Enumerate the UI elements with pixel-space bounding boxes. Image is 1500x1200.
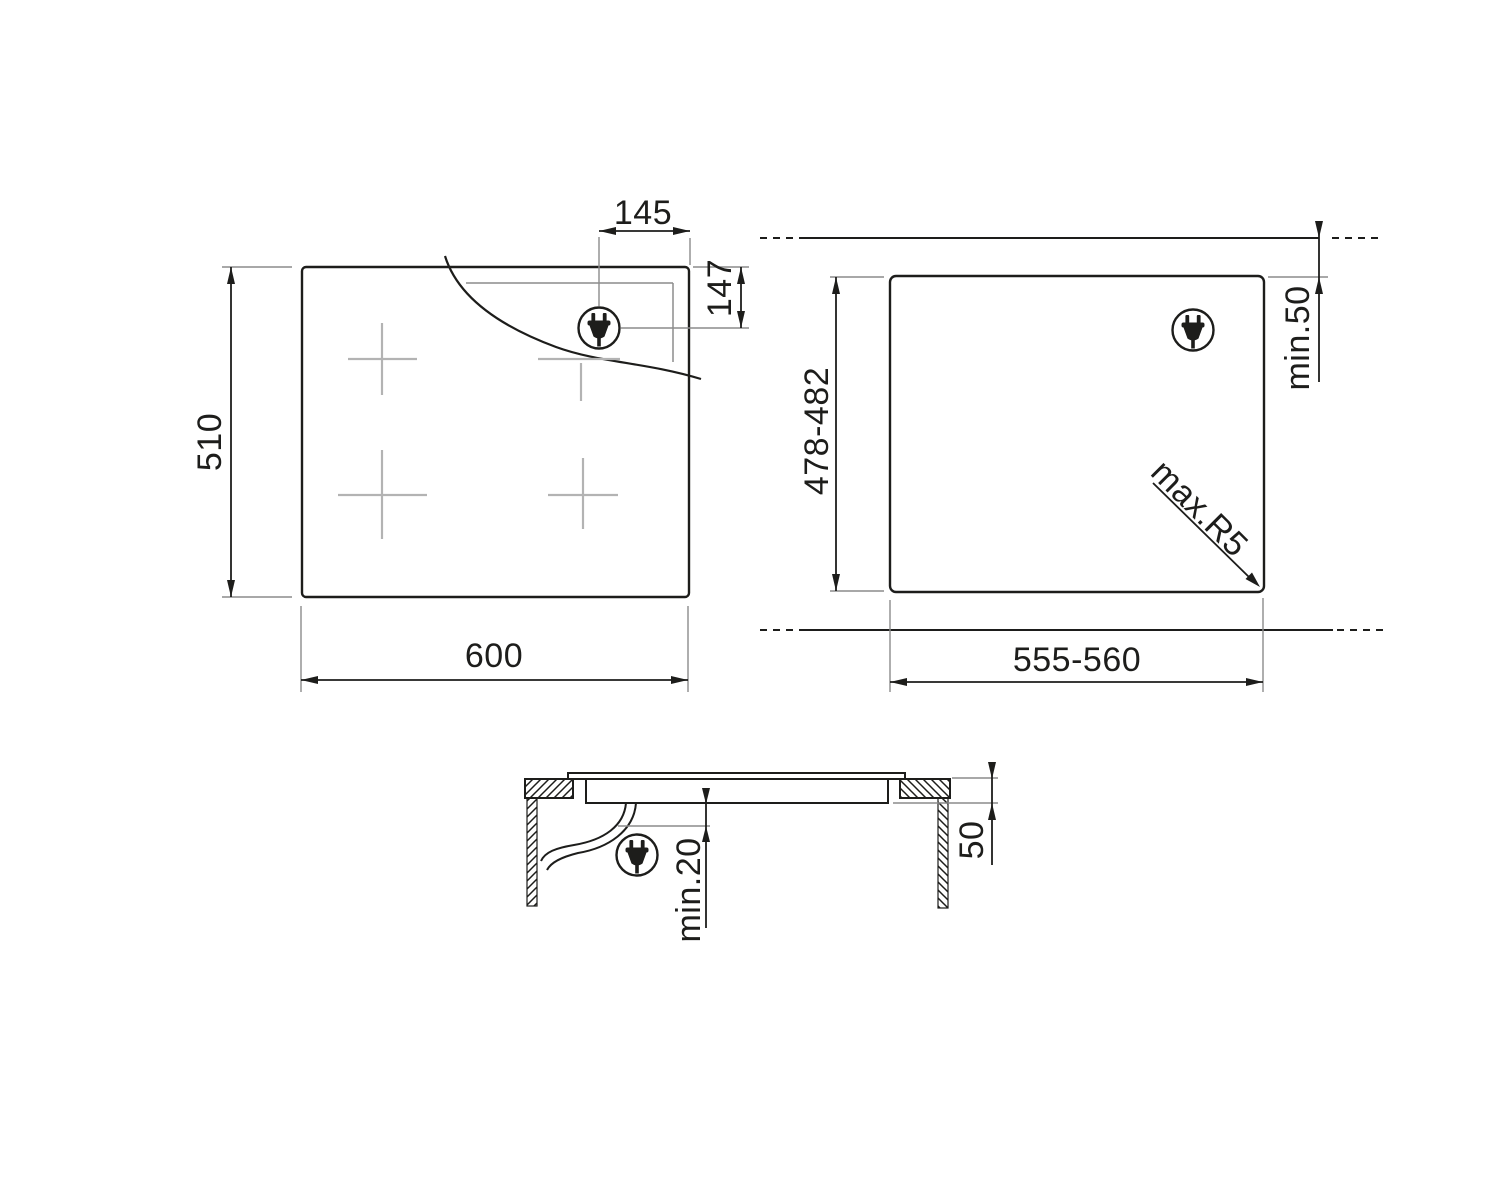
power-plug-icon <box>1173 310 1214 351</box>
dim-label-bottom-clearance: min.20 <box>670 837 708 942</box>
dim-label-cutout-width: 555-560 <box>1013 641 1141 679</box>
dim-label-height: 510 <box>191 413 229 471</box>
dim-label-rear-clearance: min.50 <box>1279 285 1317 390</box>
dim-height: 510 <box>191 267 292 597</box>
dim-label-install-depth: 50 <box>953 821 991 860</box>
dim-width: 600 <box>301 606 688 692</box>
power-plug-icon <box>617 835 658 876</box>
dim-label-cutout-depth: 478-482 <box>798 367 836 495</box>
hob-body-section <box>586 779 888 803</box>
dim-rear-clearance: min.50 <box>1268 221 1328 391</box>
top-view: 510 600 145 147 <box>191 194 749 692</box>
dim-cutout-depth: 478-482 <box>798 277 884 591</box>
installation-drawing: 510 600 145 147 <box>0 0 1500 1200</box>
section-view: min.20 50 <box>525 762 998 943</box>
dim-label-plug-x: 145 <box>614 194 672 232</box>
dim-label-plug-y: 147 <box>701 259 739 317</box>
cutout-view: 478-482 555-560 min.50 max.R5 <box>760 221 1384 692</box>
cabinet-panel-right <box>938 798 948 908</box>
worktop-section-right <box>900 779 950 798</box>
worktop-section-left <box>525 779 573 798</box>
power-plug-icon <box>579 308 620 349</box>
cabinet-panel-left <box>527 798 537 906</box>
dim-cutout-width: 555-560 <box>890 598 1263 692</box>
installation-drawing-page: 510 600 145 147 <box>0 0 1500 1200</box>
hob-glass-section <box>568 773 905 779</box>
dim-label-width: 600 <box>465 637 523 675</box>
